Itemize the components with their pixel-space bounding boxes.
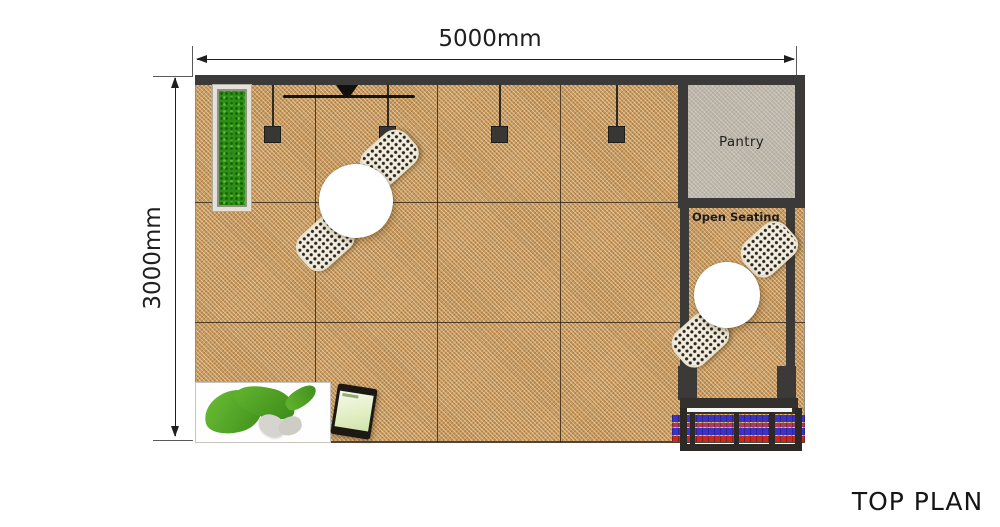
- extension-line: [192, 46, 193, 76]
- grid-line: [437, 85, 438, 443]
- width-dimension-line: [197, 59, 794, 60]
- pantry-label: Pantry: [719, 134, 764, 150]
- flower-bed-bottom-frame: [680, 444, 802, 451]
- light-stem: [616, 85, 618, 127]
- railing-top-bar: [680, 398, 798, 414]
- height-dimension-line: [175, 78, 176, 436]
- extension-line: [153, 440, 193, 441]
- green-planter: [212, 84, 252, 212]
- pantry-floor: Pantry: [688, 85, 795, 198]
- arrowhead-right-icon: [784, 55, 795, 63]
- grid-line: [560, 85, 561, 443]
- height-dimension-label: 3000mm: [140, 178, 170, 338]
- arrowhead-down-icon: [171, 426, 179, 437]
- bean-bag-arm: [282, 381, 320, 413]
- entrance-mat: [195, 382, 331, 443]
- arrowhead-up-icon: [171, 77, 179, 88]
- light-stem: [499, 85, 501, 127]
- flower-bed-post: [734, 412, 739, 446]
- wall-display: [283, 95, 415, 98]
- hanging-light-icon: [491, 126, 508, 143]
- arrowhead-left-icon: [196, 55, 207, 63]
- extension-line: [796, 46, 797, 78]
- page-title: TOP PLAN: [840, 487, 995, 516]
- tablet-kiosk: [330, 383, 377, 440]
- light-stem: [272, 85, 274, 127]
- light-stem: [387, 85, 389, 127]
- round-table: [319, 164, 393, 238]
- hanging-light-icon: [264, 126, 281, 143]
- open-seating-post: [678, 366, 697, 400]
- planter-moss-fill: [217, 89, 247, 207]
- width-dimension-label: 5000mm: [390, 26, 590, 52]
- top-plan-canvas: 5000mm 3000mm Pantry: [0, 0, 1000, 527]
- tablet-screen: [334, 391, 373, 432]
- railing-white-rail: [686, 408, 792, 412]
- hanging-light-icon: [608, 126, 625, 143]
- flower-bed-post: [769, 412, 775, 446]
- flower-bed-post: [690, 412, 695, 446]
- pantry-room: Pantry: [678, 75, 805, 208]
- extension-line: [153, 76, 193, 77]
- open-seating-post: [777, 366, 796, 400]
- round-table: [694, 262, 760, 328]
